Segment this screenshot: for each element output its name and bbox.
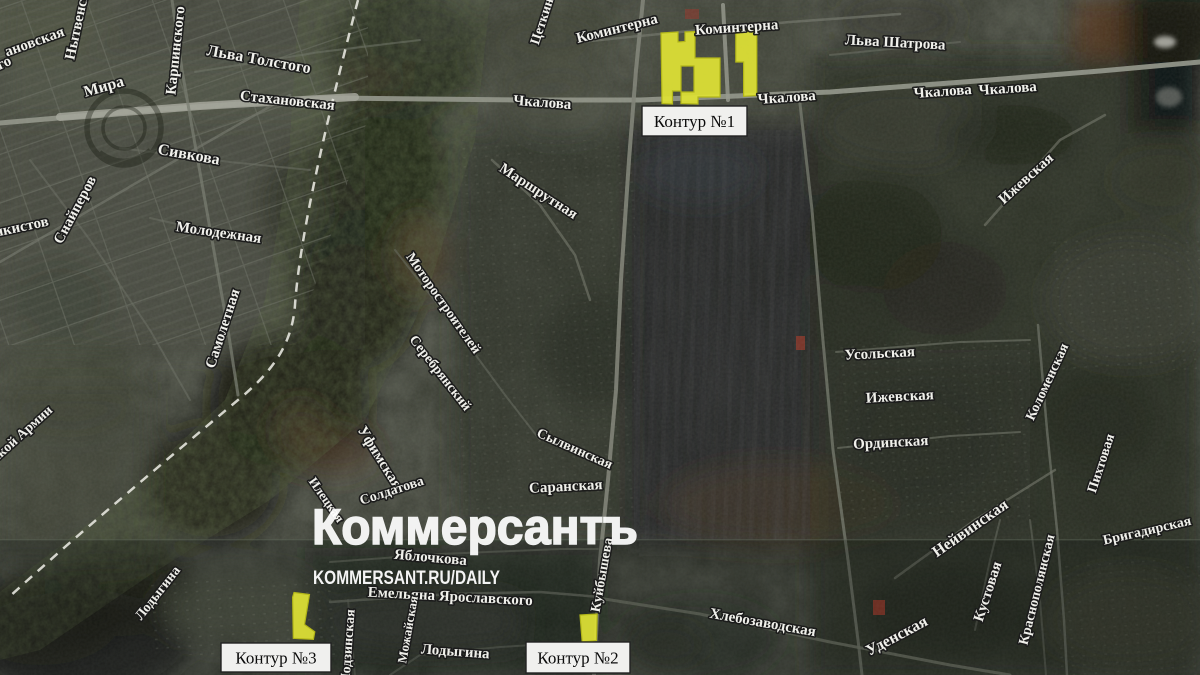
svg-text:Контур №3: Контур №3 bbox=[235, 649, 316, 668]
svg-text:KOMMERSANT.RU/DAILY: KOMMERSANT.RU/DAILY bbox=[313, 567, 500, 589]
svg-text:Коммерсантъ: Коммерсантъ bbox=[312, 499, 638, 555]
svg-text:Контур №1: Контур №1 bbox=[654, 112, 735, 131]
svg-text:Контур №2: Контур №2 bbox=[537, 649, 618, 668]
